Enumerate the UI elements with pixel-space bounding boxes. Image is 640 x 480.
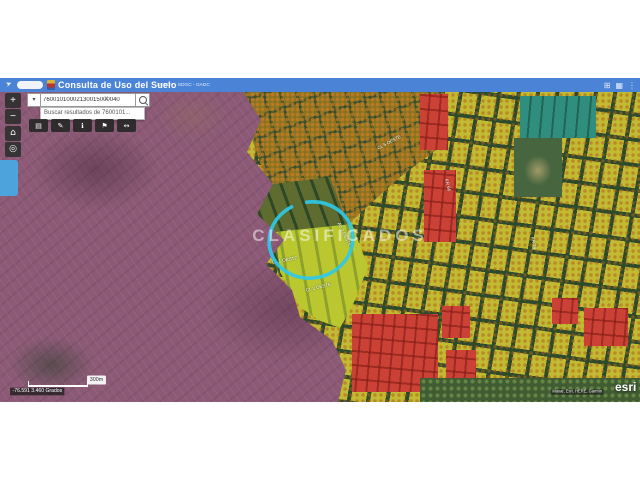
bookmark-button[interactable]: ⚑ — [95, 119, 114, 132]
header-bar: ➤ Consulta de Uso del Suelo SEPOV - SDGC… — [0, 78, 640, 92]
watermark-text: CLASIFICADOS — [252, 226, 428, 246]
map-tool-row: ▤ ✎ ℹ ⚑ ↔ — [29, 119, 136, 132]
apps-icon[interactable]: ▦ — [615, 81, 623, 90]
measure-button[interactable]: ↔ — [117, 119, 136, 132]
map-attribution: Maxar, Esri, HERE, Garmin — [551, 389, 603, 394]
zoom-out-button[interactable]: − — [5, 109, 21, 124]
entity-logo — [17, 81, 43, 89]
header-icon-group: ⊞ ▦ ⋮ — [604, 78, 636, 92]
map-canvas[interactable]: CL 1 OESTE CL 2 OESTE AV 2 OESTE KR 66 C… — [0, 92, 640, 402]
zone-red-block — [420, 94, 448, 150]
scale-label: 300m — [87, 376, 106, 385]
panel-toggle-button[interactable] — [0, 160, 18, 196]
zoom-in-button[interactable]: + — [5, 93, 21, 108]
menu-icon[interactable]: ⋮ — [628, 81, 636, 90]
grid-icon[interactable]: ⊞ — [604, 81, 611, 90]
zone-red-block — [442, 306, 470, 338]
crest-logo — [47, 80, 55, 90]
esri-logo: esri — [615, 380, 636, 394]
search-icon — [139, 96, 147, 104]
zone-red-block — [424, 170, 456, 242]
print-button[interactable]: ▤ — [29, 119, 48, 132]
search-dropdown-button[interactable]: ▾ — [27, 93, 40, 107]
coordinates-readout: -76.591 3.460 Grados — [10, 388, 65, 396]
zone-red-block — [552, 298, 578, 324]
info-button[interactable]: ℹ — [73, 119, 92, 132]
locate-me-button[interactable]: ◎ — [5, 142, 21, 157]
search-widget: ▾ — [27, 93, 150, 107]
search-input[interactable] — [40, 93, 136, 107]
home-extent-button[interactable]: ⌂ — [5, 126, 21, 141]
zone-institutional-teal — [520, 96, 596, 138]
header-links[interactable]: SEPOV - SDGC - GADC — [157, 79, 210, 90]
clear-search-icon[interactable]: × — [104, 95, 109, 103]
zone-vegetation-strip — [420, 378, 640, 402]
scale-bar — [28, 381, 88, 387]
draw-button[interactable]: ✎ — [51, 119, 70, 132]
nav-arrow-icon: ➤ — [5, 80, 13, 89]
search-button[interactable] — [136, 93, 150, 107]
zone-park-green — [514, 138, 562, 197]
app-window: ➤ Consulta de Uso del Suelo SEPOV - SDGC… — [0, 0, 640, 480]
zone-red-block — [584, 308, 628, 346]
